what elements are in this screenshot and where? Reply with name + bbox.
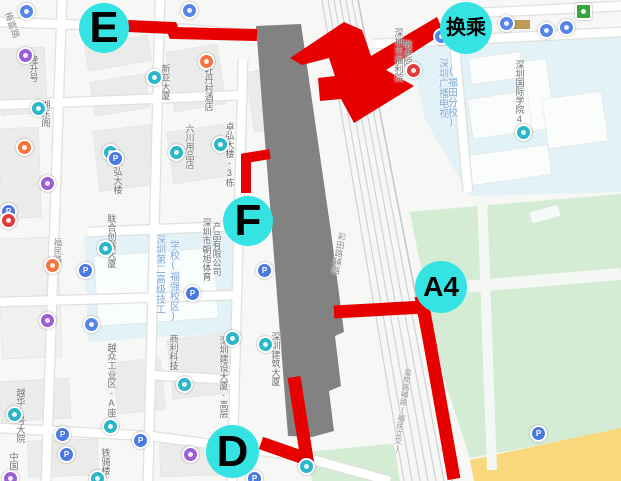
poi-icon[interactable] — [89, 470, 106, 481]
poi-icon[interactable] — [212, 136, 229, 153]
poi-icon[interactable] — [558, 19, 575, 36]
poi-icon[interactable] — [39, 175, 56, 192]
poi-icon[interactable] — [182, 446, 199, 463]
exit-e-badge[interactable]: E — [79, 3, 129, 53]
bus-stop-icon[interactable] — [575, 3, 592, 20]
poi-label: 越众工业区-A座 — [106, 343, 115, 417]
poi-icon[interactable] — [30, 100, 47, 117]
poi-icon[interactable] — [146, 69, 163, 86]
exit-d-badge[interactable]: D — [206, 425, 259, 478]
map-base-layer — [0, 0, 621, 481]
parking-icon[interactable]: P — [132, 432, 149, 449]
parking-icon[interactable]: P — [107, 150, 124, 167]
poi-icon[interactable] — [18, 3, 35, 20]
parking-icon[interactable]: P — [184, 285, 201, 302]
poi-label: 深圳建设大厦-高层 — [218, 336, 227, 418]
poi-icon[interactable] — [257, 336, 274, 353]
poi-label: 六川用品店 — [184, 124, 193, 169]
poi-icon[interactable] — [515, 124, 532, 141]
poi-label: 牡丹村酒店 — [203, 66, 212, 111]
area-label: (福田分校) — [445, 66, 456, 128]
transfer-badge[interactable]: 换乘 — [440, 2, 492, 54]
poi-icon[interactable] — [97, 240, 114, 257]
poi-icon[interactable] — [2, 470, 19, 481]
poi-label: 深圳市朝旭体育 — [201, 218, 210, 281]
poi-label: 卓弘大楼-3栋 — [224, 122, 233, 187]
poi-icon[interactable] — [538, 22, 555, 39]
poi-icon[interactable] — [0, 212, 17, 229]
parking-icon[interactable]: P — [77, 262, 94, 279]
map-canvas[interactable]: P P P P P P P P P P 隆升号 湖东阁 新亚大厦 牡丹村酒店 卓… — [0, 0, 621, 481]
poi-icon[interactable] — [44, 257, 61, 274]
route-exit-d — [261, 377, 307, 459]
poi-icon[interactable] — [16, 139, 33, 156]
poi-icon[interactable] — [198, 53, 215, 70]
route-exit-a4-h — [334, 307, 424, 312]
poi-icon[interactable] — [39, 312, 56, 329]
exit-f-badge[interactable]: F — [223, 196, 273, 246]
route-exit-f — [246, 154, 270, 193]
exit-a4-badge[interactable]: A4 — [415, 261, 467, 313]
poi-icon[interactable] — [83, 316, 100, 333]
poi-icon[interactable] — [6, 406, 23, 423]
poi-label: 商利科技 — [168, 334, 177, 370]
parking-icon[interactable]: P — [58, 446, 75, 463]
poi-label: 深圳国际学院4 — [514, 60, 523, 124]
area-label: 学校(福强校区) — [167, 240, 178, 322]
poi-icon[interactable] — [176, 376, 193, 393]
poi-icon[interactable] — [168, 144, 185, 161]
parking-icon[interactable]: P — [54, 426, 71, 443]
parking-icon[interactable]: P — [530, 425, 547, 442]
poi-icon[interactable] — [102, 418, 119, 435]
poi-label: 产品有限公司 — [211, 222, 220, 276]
poi-icon[interactable] — [181, 2, 198, 19]
parking-icon[interactable]: P — [256, 262, 273, 279]
poi-icon[interactable] — [224, 330, 241, 347]
poi-icon[interactable] — [498, 15, 515, 32]
poi-icon[interactable] — [17, 47, 34, 64]
poi-icon[interactable] — [405, 62, 422, 79]
poi-icon[interactable] — [298, 458, 315, 475]
area-label: 深圳第二高级技工 — [153, 234, 164, 314]
